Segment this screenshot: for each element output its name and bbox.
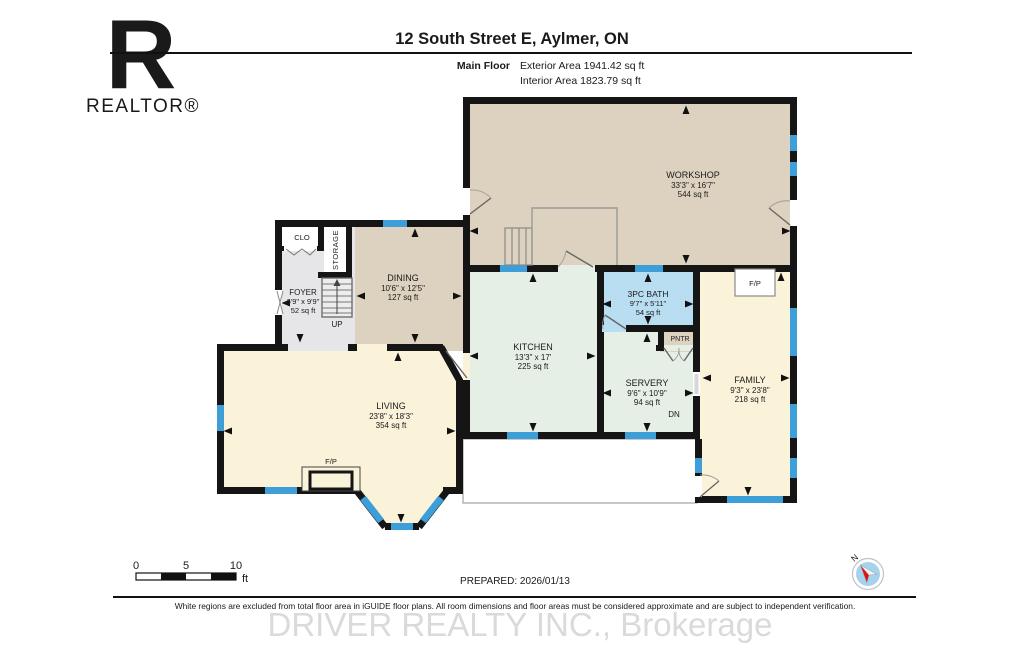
- kitchen-floor: [463, 265, 604, 439]
- scale-bar: 0 5 10 ft: [133, 560, 248, 585]
- closet-label: CLO: [294, 233, 310, 242]
- kitchen-dims: 13'3" x 17': [515, 353, 552, 362]
- foyer-dims: 6'9" x 9'9": [287, 297, 320, 306]
- pantry-label: PNTR: [670, 336, 689, 343]
- compass-icon: N: [849, 552, 884, 589]
- bath-dims: 9'7" x 5'11": [630, 299, 667, 308]
- family-area: 218 sq ft: [735, 395, 766, 404]
- living-fireplace-label: F/P: [325, 457, 337, 466]
- servery-name: SERVERY: [626, 378, 669, 388]
- porch-area: [463, 439, 697, 503]
- dining-name: DINING: [387, 273, 419, 283]
- scale-tick-5: 5: [183, 560, 189, 572]
- dining-dims: 10'6" x 12'5": [381, 284, 425, 293]
- bath-name: 3PC BATH: [628, 289, 669, 299]
- dining-area: 127 sq ft: [388, 293, 419, 302]
- family-dims: 9'3" x 23'8": [730, 386, 770, 395]
- scale-unit: ft: [242, 573, 248, 585]
- living-name: LIVING: [376, 401, 406, 411]
- servery-dims: 9'6" x 10'9": [627, 389, 667, 398]
- family-fireplace-label: F/P: [749, 279, 761, 288]
- exterior-area: Exterior Area 1941.42 sq ft: [520, 60, 644, 72]
- stairs-up-label: UP: [331, 320, 342, 329]
- family-name: FAMILY: [734, 375, 765, 385]
- brokerage-watermark: DRIVER REALTY INC., Brokerage: [268, 606, 773, 643]
- kitchen-area: 225 sq ft: [518, 362, 549, 371]
- page-title: 12 South Street E, Aylmer, ON: [395, 30, 629, 48]
- bath-area: 54 sq ft: [636, 308, 662, 317]
- workshop-name: WORKSHOP: [666, 170, 720, 180]
- workshop-area: 544 sq ft: [678, 190, 709, 199]
- kitchen-name: KITCHEN: [513, 342, 553, 352]
- servery-area: 94 sq ft: [634, 398, 661, 407]
- workshop-floor: [463, 97, 797, 272]
- floor-plan-svg: R REALTOR® 12 South Street E, Aylmer, ON…: [0, 0, 1024, 650]
- scale-tick-0: 0: [133, 560, 139, 572]
- disclaimer-text: White regions are excluded from total fl…: [175, 601, 856, 611]
- scale-tick-10: 10: [230, 560, 242, 572]
- prepared-date: PREPARED: 2026/01/13: [460, 576, 570, 587]
- realtor-logo-letter: R: [106, 0, 177, 109]
- workshop-dims: 33'3" x 16'7": [671, 181, 715, 190]
- living-fireplace: [302, 467, 360, 491]
- floor-plan-page: R REALTOR® 12 South Street E, Aylmer, ON…: [0, 0, 1024, 650]
- stairs-dn-label: DN: [668, 410, 680, 419]
- living-dims: 23'8" x 18'3": [369, 412, 413, 421]
- realtor-logo: R REALTOR®: [86, 0, 200, 117]
- living-floor: [217, 344, 463, 530]
- foyer-stairs: [322, 278, 352, 317]
- storage-label: STORAGE: [331, 230, 340, 270]
- interior-area: Interior Area 1823.79 sq ft: [520, 75, 641, 87]
- floor-label: Main Floor: [457, 60, 510, 72]
- foyer-area: 52 sq ft: [291, 306, 317, 315]
- foyer-name: FOYER: [289, 288, 317, 297]
- realtor-logo-text: REALTOR®: [86, 96, 200, 117]
- living-area: 354 sq ft: [376, 421, 407, 430]
